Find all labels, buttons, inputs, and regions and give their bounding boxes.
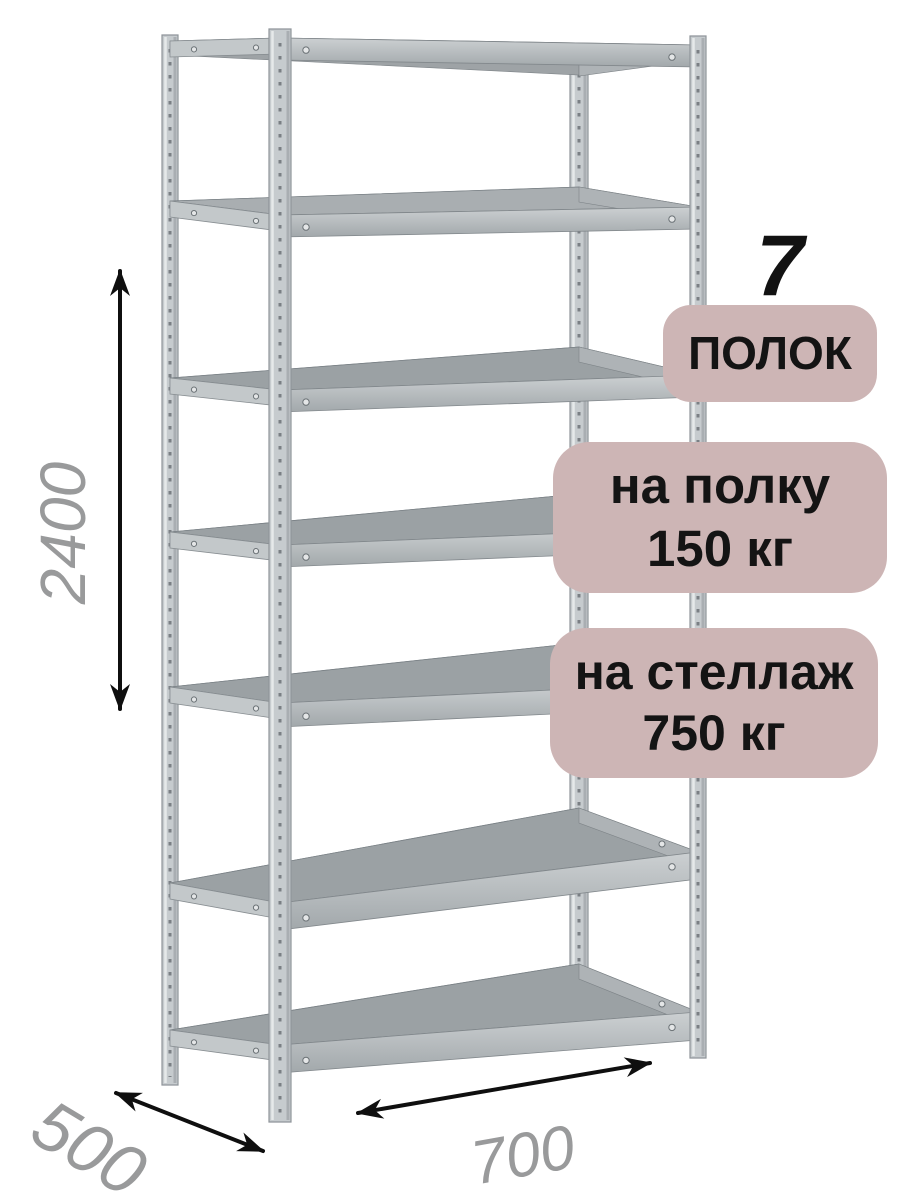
shelving-rack-illustration [0, 0, 900, 1200]
shelf [170, 964, 698, 1073]
shelf-load-badge: на полку 150 кг [553, 442, 887, 593]
width-dimension-arrow [358, 1063, 650, 1113]
rack-load-badge: на стеллаж 750 кг [550, 628, 878, 778]
rack-load-line1: на стеллаж [575, 642, 854, 703]
shelf [170, 38, 698, 76]
height-dimension-label: 2400 [31, 462, 95, 604]
shelf [170, 808, 698, 930]
rack-post-front-left [269, 29, 291, 1122]
shelf-load-line2: 150 кг [647, 518, 793, 580]
product-card-image: 2400 500 700 7 ПОЛОК на полку 150 кг на … [0, 0, 900, 1200]
shelf-count-number: 7 [756, 223, 804, 309]
rack-post-back-left [162, 35, 178, 1085]
shelf [170, 347, 698, 412]
shelf-count-badge: ПОЛОК [663, 305, 877, 402]
shelf-count-badge-label: ПОЛОК [688, 325, 852, 381]
shelf-load-line1: на полку [610, 455, 830, 517]
shelf [170, 187, 698, 237]
rack-load-line2: 750 кг [642, 703, 785, 764]
